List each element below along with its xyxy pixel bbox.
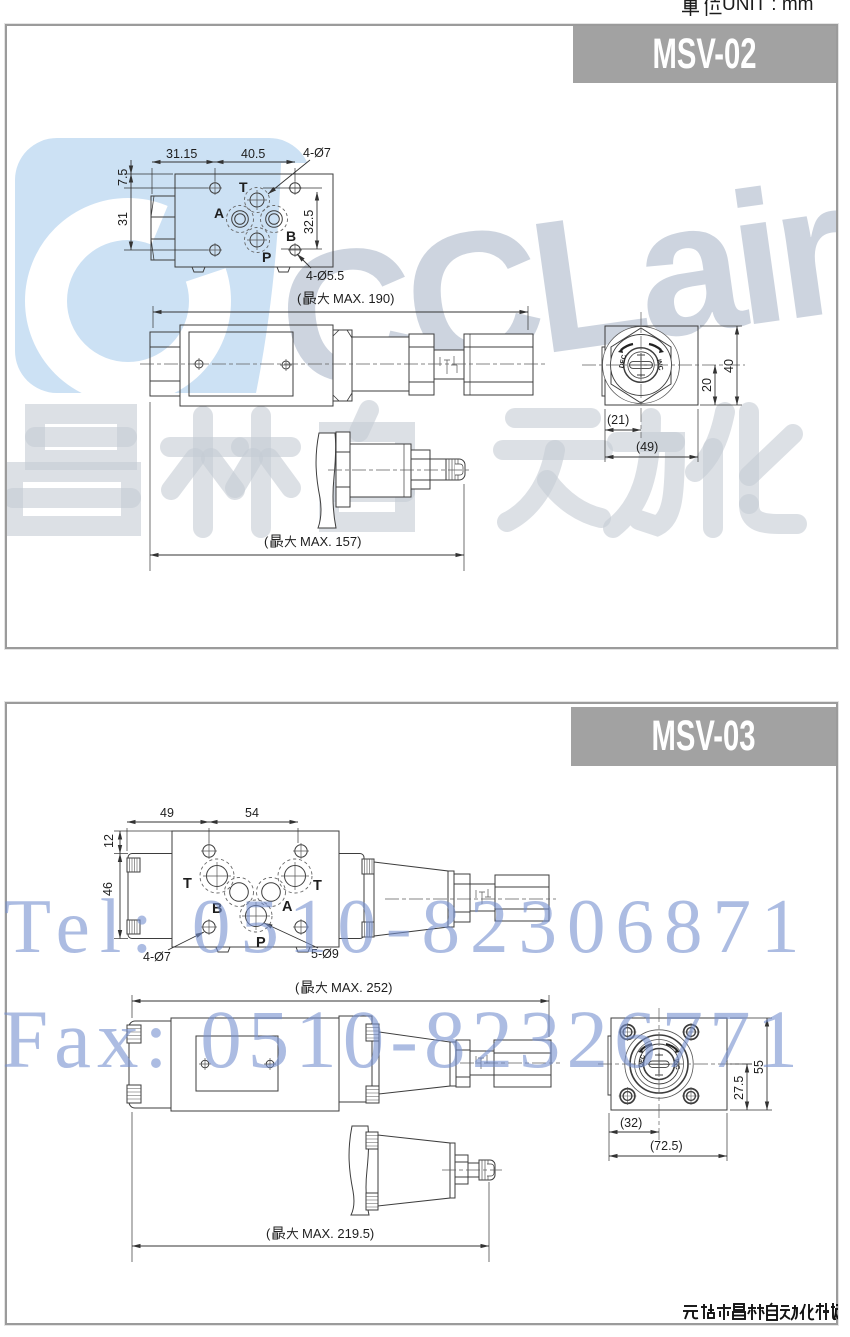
svg-text:MAX. 157): MAX. 157) — [300, 534, 361, 549]
svg-text:4-Ø7: 4-Ø7 — [143, 950, 171, 964]
svg-text:54: 54 — [245, 806, 259, 820]
svg-text:(49): (49) — [636, 440, 658, 454]
svg-text:MAX. 252): MAX. 252) — [331, 980, 392, 995]
svg-text:40.5: 40.5 — [241, 147, 265, 161]
svg-text:(72.5): (72.5) — [650, 1139, 683, 1153]
svg-text:40: 40 — [722, 359, 736, 373]
svg-text:DEC: DEC — [638, 1054, 647, 1068]
svg-text:5-Ø9: 5-Ø9 — [311, 947, 339, 961]
svg-text:A: A — [214, 205, 224, 221]
svg-text:MAX. 190): MAX. 190) — [333, 291, 394, 306]
svg-text:A: A — [282, 899, 293, 915]
svg-text:B: B — [286, 228, 296, 244]
svg-text:32.5: 32.5 — [302, 210, 316, 234]
svg-text:31: 31 — [116, 212, 130, 226]
svg-text:20: 20 — [700, 378, 714, 392]
svg-text:T: T — [313, 878, 322, 894]
svg-text:T: T — [183, 876, 192, 892]
svg-text:(: ( — [264, 534, 269, 549]
svg-text:46: 46 — [101, 882, 115, 896]
svg-text:(: ( — [266, 1226, 271, 1241]
svg-text:31.15: 31.15 — [166, 147, 197, 161]
svg-text:55: 55 — [752, 1060, 766, 1074]
svg-text:49: 49 — [160, 806, 174, 820]
svg-text:4-Ø5.5: 4-Ø5.5 — [306, 269, 344, 283]
svg-text:(: ( — [297, 291, 302, 306]
svg-text:B: B — [212, 901, 222, 917]
svg-text:27.5: 27.5 — [732, 1076, 746, 1100]
svg-text:4-Ø7: 4-Ø7 — [303, 146, 331, 160]
svg-text:T: T — [239, 179, 248, 195]
svg-text:(32): (32) — [620, 1116, 642, 1130]
svg-text:12: 12 — [102, 834, 116, 848]
svg-text:(21): (21) — [607, 413, 629, 427]
svg-text:7.5: 7.5 — [116, 169, 130, 186]
svg-text:P: P — [262, 249, 271, 265]
svg-text:MAX. 219.5): MAX. 219.5) — [302, 1226, 374, 1241]
svg-text:P: P — [256, 935, 266, 951]
svg-text:(: ( — [295, 980, 300, 995]
